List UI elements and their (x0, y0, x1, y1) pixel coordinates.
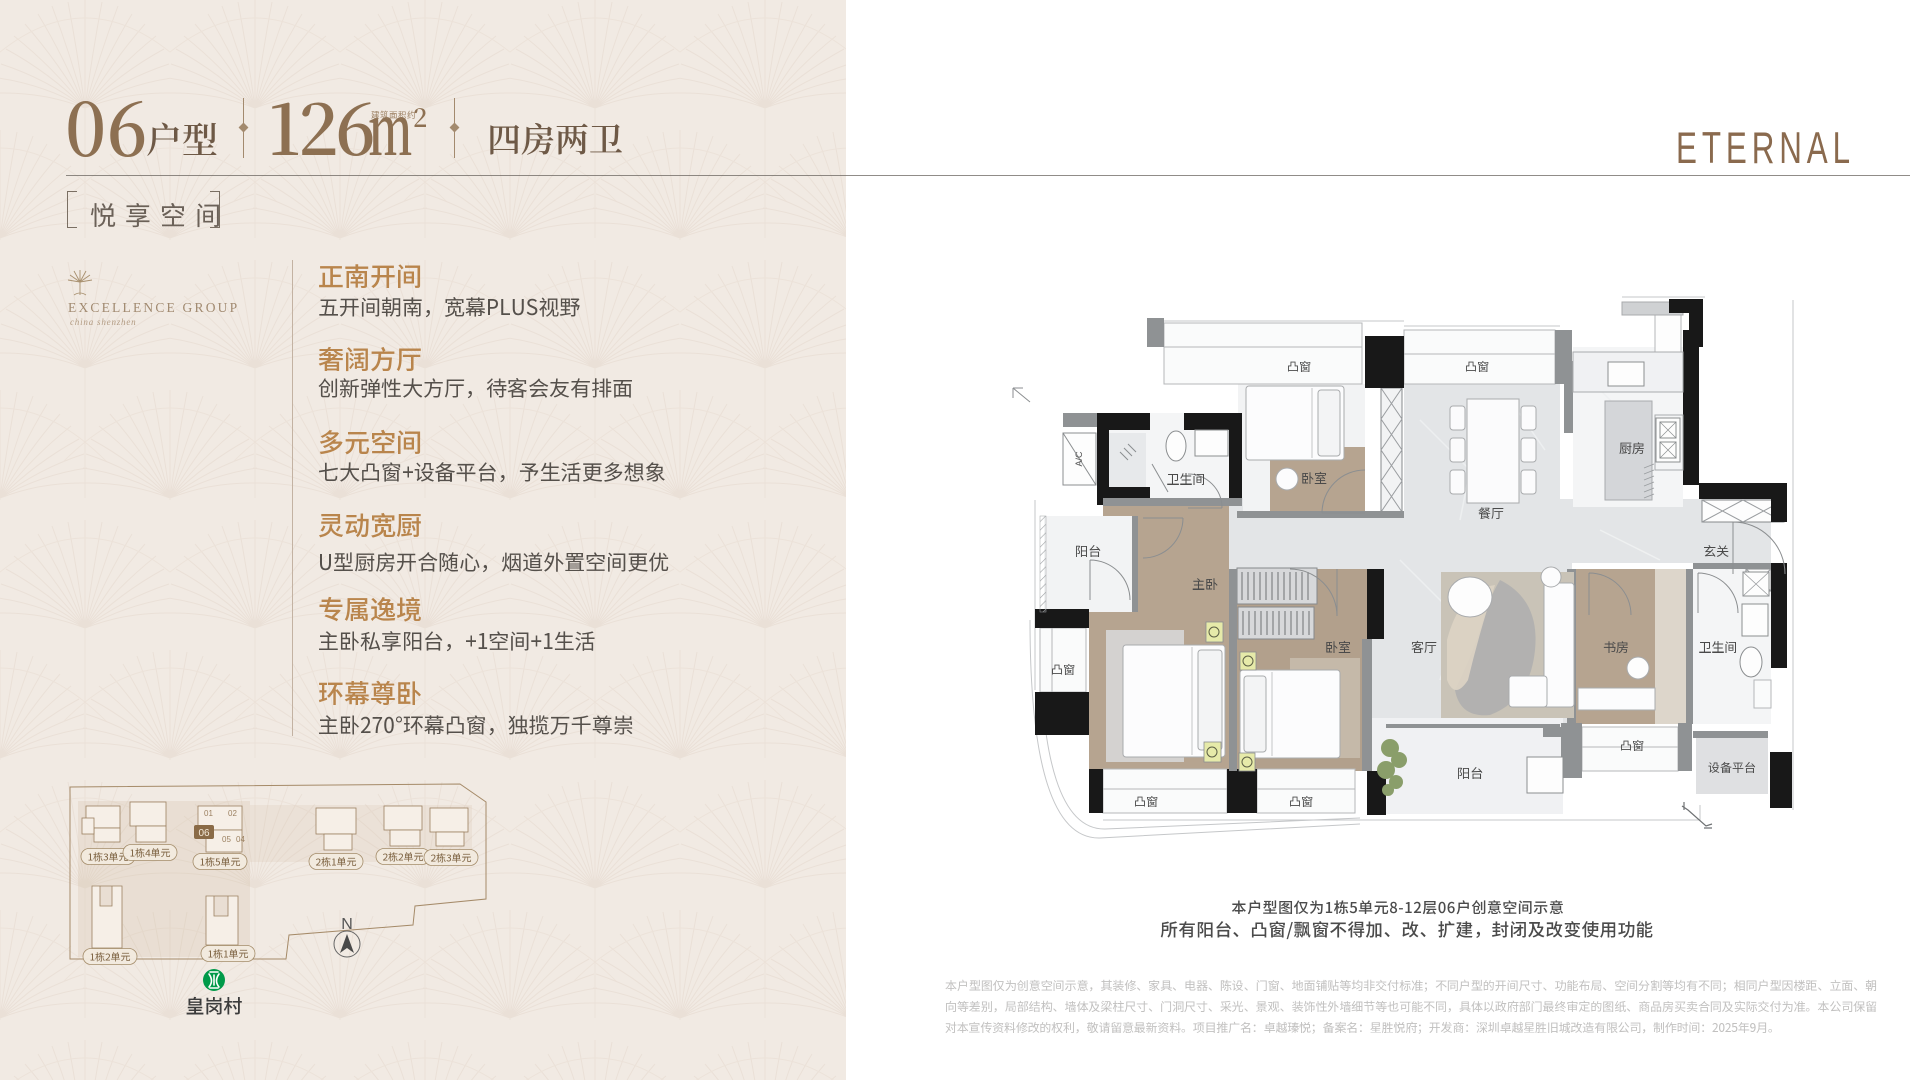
svg-text:卫生间: 卫生间 (1698, 637, 1737, 656)
svg-text:卧室: 卧室 (1301, 468, 1327, 487)
svg-text:书房: 书房 (1603, 637, 1629, 656)
svg-text:凸窗: 凸窗 (1287, 358, 1311, 375)
svg-text:2栋1单元: 2栋1单元 (315, 854, 356, 869)
svg-text:1栋5单元: 1栋5单元 (199, 854, 240, 869)
svg-text:皇岗村: 皇岗村 (185, 992, 242, 1019)
svg-text:凸窗: 凸窗 (1465, 358, 1489, 375)
svg-text:厨房: 厨房 (1619, 438, 1645, 457)
svg-text:A/C: A/C (1074, 451, 1084, 467)
svg-text:玄关: 玄关 (1703, 541, 1729, 560)
svg-text:卫生间: 卫生间 (1166, 469, 1205, 488)
svg-text:阳台: 阳台 (1457, 763, 1483, 782)
svg-text:凸窗: 凸窗 (1051, 661, 1075, 678)
svg-text:1栋2单元: 1栋2单元 (89, 949, 130, 964)
svg-text:2栋3单元: 2栋3单元 (430, 850, 471, 865)
svg-text:凸窗: 凸窗 (1289, 793, 1313, 810)
svg-text:04: 04 (236, 835, 245, 844)
svg-text:设备平台: 设备平台 (1708, 759, 1756, 776)
svg-text:凸窗: 凸窗 (1620, 737, 1644, 754)
svg-text:2栋2单元: 2栋2单元 (382, 849, 423, 864)
svg-text:客厅: 客厅 (1411, 637, 1437, 656)
svg-text:05: 05 (222, 835, 231, 844)
svg-text:阳台: 阳台 (1075, 541, 1101, 560)
svg-text:1栋3单元: 1栋3单元 (87, 849, 128, 864)
svg-text:卧室: 卧室 (1325, 637, 1351, 656)
svg-text:凸窗: 凸窗 (1134, 793, 1158, 810)
svg-text:06: 06 (198, 828, 210, 839)
svg-text:1栋1单元: 1栋1单元 (207, 946, 248, 961)
svg-text:主卧: 主卧 (1192, 574, 1219, 593)
svg-text:01: 01 (204, 809, 213, 818)
svg-text:餐厅: 餐厅 (1478, 503, 1504, 522)
svg-text:N: N (341, 916, 353, 933)
svg-text:02: 02 (228, 809, 237, 818)
svg-text:1栋4单元: 1栋4单元 (129, 845, 170, 860)
